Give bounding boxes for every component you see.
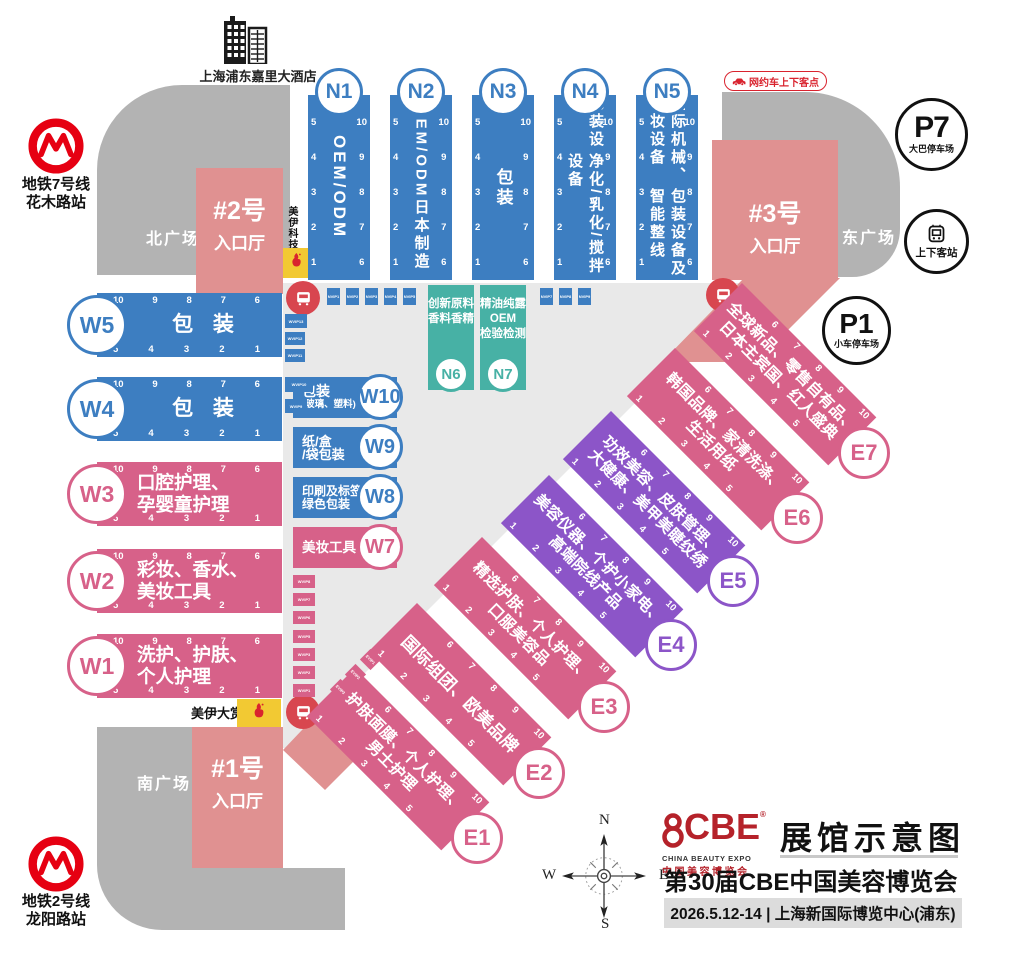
ride-hailing-point: 网约车上下客点 <box>724 71 827 91</box>
flame-logo-icon <box>251 702 267 725</box>
hall-label: 洗护、护肤、个人护理 <box>137 634 276 698</box>
hall-label-line: 香料香精 <box>428 312 474 327</box>
hall-label: 精油纯露OEM检验检测 <box>480 297 526 342</box>
vip-booth-wvip3: WVIP3 <box>293 648 315 661</box>
hall-n1: 54321109876OEM/ODM <box>308 95 370 280</box>
compass-west: W <box>542 867 556 884</box>
hall-n2-badge: N2 <box>397 68 445 116</box>
vip-booth-wvip6: WVIP6 <box>293 611 315 624</box>
passenger-station-badge: 上下客站 <box>904 209 969 274</box>
hall-n1-badge: N1 <box>315 68 363 116</box>
hall-label-line: 净化/乳化/搅拌设备 <box>564 153 606 280</box>
entrance-2-label: 入口厅 <box>214 229 265 254</box>
hall-n4-badge: N4 <box>561 68 609 116</box>
entrance-hall-2: #2号 入口厅 <box>196 168 283 294</box>
vip-booth-wvip9: WVIP9 <box>285 399 307 413</box>
hall-e4-badge: E4 <box>645 619 697 671</box>
hall-label: 彩妆、香水、美妆工具 <box>137 549 276 613</box>
hall-label: 包装 <box>472 95 534 280</box>
entrance-hall-1: #1号 入口厅 <box>192 727 283 868</box>
car-icon <box>732 77 746 86</box>
parking-p1-badge: P1 小车停车场 <box>822 296 891 365</box>
hall-label-line: 纸/盒 <box>302 435 345 448</box>
vip-booth-nvip5: NVIP5 <box>403 288 416 305</box>
meiyi-logo-box <box>237 699 281 727</box>
hall-label: 纸/盒/袋包装 <box>302 427 345 468</box>
compass-south: S <box>601 916 609 933</box>
hall-e2-badge: E2 <box>513 747 565 799</box>
cbe-logo-registered: ® <box>760 810 766 819</box>
compass-rose-icon <box>562 834 646 923</box>
hall-label: 包装设备净化/乳化/搅拌设备 <box>554 95 616 280</box>
hotel-building-icon <box>210 16 274 69</box>
hall-n5: 54321109876国际机械、彩妆设备包装设备及智能整线 <box>636 95 698 280</box>
expo-subtitle: 第30届CBE中国美容博览会 <box>664 862 957 897</box>
hall-label: OEM/ODM日本制造 <box>390 95 452 280</box>
hall-w4-badge: W4 <box>67 379 127 439</box>
hall-w3-badge: W3 <box>67 464 127 524</box>
hall-label: 口腔护理、孕婴童护理 <box>137 462 276 526</box>
vip-booth-wvip13: WVIP13 <box>285 314 307 328</box>
hall-label-line: 创新原料 <box>428 297 474 312</box>
hall-label: 国际机械、彩妆设备包装设备及智能整线 <box>636 95 698 280</box>
hall-label-line: (玻璃、塑料) <box>302 398 356 411</box>
passenger-station-label: 上下客站 <box>916 245 958 260</box>
cbe-flame-icon <box>662 812 684 853</box>
metro2-station-label: 地铁2号线 龙阳路站 <box>10 893 102 929</box>
entrance-3-label: 入口厅 <box>750 232 801 257</box>
vip-booth-nvip8: NVIP8 <box>559 288 572 305</box>
hall-label: 包 装 <box>137 293 276 357</box>
vip-booth-nvip1: NVIP1 <box>327 288 340 305</box>
metro7-station-label: 地铁7号线 花木路站 <box>10 176 102 212</box>
hall-label-line: 美妆工具 <box>137 581 276 603</box>
metro7-line: 地铁7号线 <box>10 176 102 194</box>
hall-e3-badge: E3 <box>578 681 630 733</box>
entrance-hall-3: #3号 入口厅 <box>712 140 838 280</box>
entrance-2-number: #2号 <box>213 191 266 227</box>
hall-label-line: 包装设备及智能整线 <box>646 188 688 281</box>
hall-n2: 54321109876OEM/ODM日本制造 <box>390 95 452 280</box>
hall-label: 创新原料香料香精 <box>428 297 474 327</box>
page-title: 展馆示意图 <box>780 813 965 859</box>
south-plaza-label: 南广场 <box>137 770 191 794</box>
vip-booth-wvip12: WVIP12 <box>285 332 305 345</box>
vip-booth-nvip2: NVIP2 <box>346 288 359 305</box>
hall-label-line: 彩妆、香水、 <box>137 559 276 581</box>
bus-station-icon <box>926 223 947 244</box>
hall-n3-badge: N3 <box>479 68 527 116</box>
flame-logo-icon <box>289 252 304 274</box>
hall-w7-badge: W7 <box>357 524 403 570</box>
hall-w10-badge: W10 <box>357 374 403 420</box>
vip-booth-nvip9: NVIP9 <box>578 288 591 305</box>
metro-logo-icon <box>28 118 84 179</box>
hall-w1-badge: W1 <box>67 636 127 696</box>
hall-label-line: OEM/ODM <box>329 135 349 239</box>
vip-booth-wvip2: WVIP2 <box>293 666 315 679</box>
sponsor-award-label: 美伊大赏 <box>191 703 243 722</box>
vip-booth-nvip3: NVIP3 <box>365 288 378 305</box>
vip-booth-wvip5: WVIP5 <box>293 630 315 643</box>
north-plaza-label: 北广场 <box>146 225 200 249</box>
parking-p1-id: P1 <box>839 311 873 337</box>
entrance-1-label: 入口厅 <box>212 787 263 812</box>
hall-label-line: 美妆工具 <box>302 541 356 554</box>
vip-booth-nvip7: NVIP7 <box>540 288 553 305</box>
vip-booth-wvip8: WVIP8 <box>293 575 315 588</box>
hall-e6-badge: E6 <box>771 492 823 544</box>
hall-n5-badge: N5 <box>643 68 691 116</box>
hall-w8-badge: W8 <box>357 474 403 520</box>
entrance-1-number: #1号 <box>211 749 264 785</box>
date-venue-bar: 2026.5.12-14 | 上海新国际博览中心(浦东) <box>664 898 962 928</box>
east-plaza-label: 东广场 <box>842 224 896 248</box>
parking-p7-badge: P7 大巴停车场 <box>895 98 968 171</box>
vip-booth-wvip1: WVIP1 <box>293 684 315 697</box>
ride-hailing-label: 网约车上下客点 <box>749 74 819 89</box>
metro-logo-icon <box>28 836 84 897</box>
hall-n7-badge: N7 <box>485 356 521 392</box>
hall-label-line: 个人护理 <box>137 666 276 688</box>
hall-label-line: OEM <box>490 312 516 327</box>
hall-label: OEM/ODM <box>308 95 370 280</box>
hall-n6-badge: N6 <box>433 356 469 392</box>
vip-booth-wvip11: WVIP11 <box>285 349 305 362</box>
metro2-line: 地铁2号线 <box>10 893 102 911</box>
hall-label-line: 口腔护理、 <box>137 472 276 494</box>
vip-booth-wvip7: WVIP7 <box>293 593 315 606</box>
south-plaza-extension <box>192 868 345 930</box>
hall-label-line: 包 装 <box>172 314 241 336</box>
hall-e7-badge: E7 <box>838 427 890 479</box>
meiyi-logo-box <box>283 248 310 278</box>
hall-n3: 54321109876包装 <box>472 95 534 280</box>
hotel-label: 上海浦东嘉里大酒店 <box>188 66 328 85</box>
parking-p7-label: 大巴停车场 <box>909 142 954 155</box>
hall-label-line: 洗护、护肤、 <box>137 644 276 666</box>
hall-label-line: 检验检测 <box>480 327 526 342</box>
parking-p1-label: 小车停车场 <box>834 337 879 350</box>
hall-w5-badge: W5 <box>67 295 127 355</box>
hall-w2-badge: W2 <box>67 551 127 611</box>
vip-booth-nvip4: NVIP4 <box>384 288 397 305</box>
hall-label-line: 日本制造 <box>411 199 432 271</box>
compass-north: N <box>599 812 610 829</box>
parking-p7-id: P7 <box>914 114 949 142</box>
hall-e5-badge: E5 <box>707 555 759 607</box>
hall-label: 美妆工具 <box>302 527 356 568</box>
sponsor-tech-label: 美伊科技 <box>284 206 299 250</box>
hall-e1-badge: E1 <box>451 812 503 864</box>
hall-w9-badge: W9 <box>357 424 403 470</box>
cbe-logo-word: CBE <box>684 810 760 844</box>
hall-label: 包 装 <box>137 377 276 441</box>
hall-label-line: OEM/ODM <box>413 104 430 198</box>
hall-n4: 54321109876包装设备净化/乳化/搅拌设备 <box>554 95 616 280</box>
hall-label-line: 精油纯露 <box>480 297 526 312</box>
entrance-3-number: #3号 <box>749 194 802 230</box>
vip-booth-wvip10: WVIP10 <box>285 377 313 392</box>
hall-label-line: /袋包装 <box>302 448 345 461</box>
title-underline <box>780 855 958 858</box>
expo-floor-map: 北广场 东广场 南广场 #2号 入口厅 #3号 入口厅 #1号 入口厅 美伊科技… <box>0 0 1019 954</box>
bus-stop-icon <box>286 281 320 315</box>
hall-label-line: 孕婴童护理 <box>137 494 276 516</box>
hall-label-line: 包 装 <box>172 398 241 420</box>
hall-label-line: 包装 <box>491 168 516 208</box>
metro2-station: 龙阳路站 <box>10 911 102 929</box>
metro7-station: 花木路站 <box>10 194 102 212</box>
